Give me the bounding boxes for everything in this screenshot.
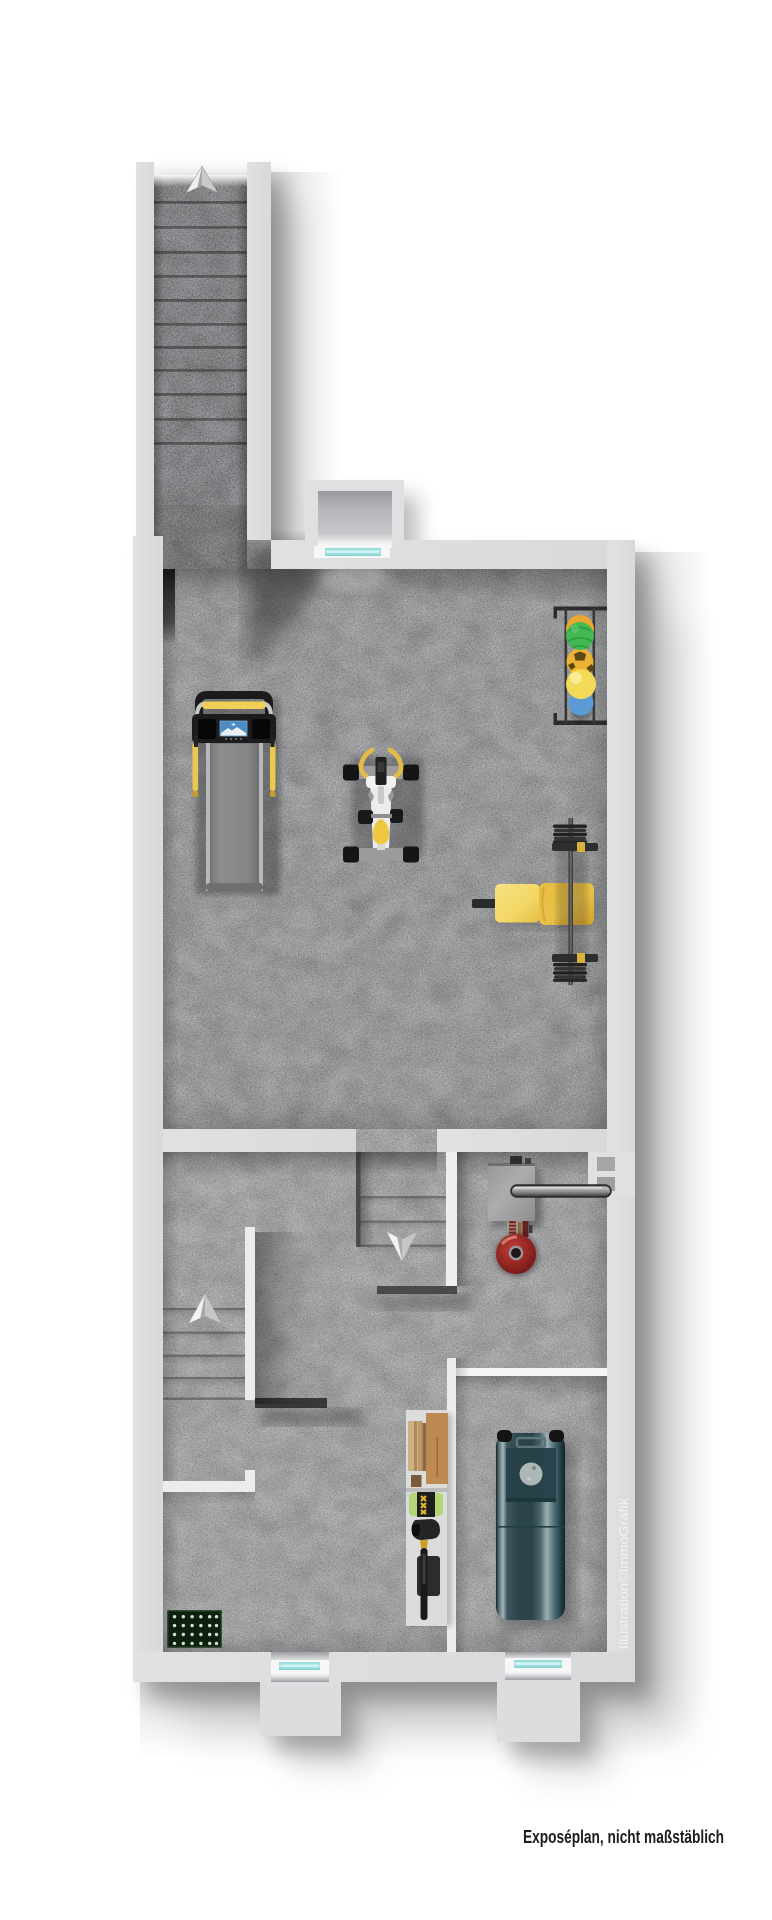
svg-text:Illustration©ImmoGrafik: Illustration©ImmoGrafik (617, 1497, 631, 1649)
svg-text:Exposéplan, nicht maßstäblich: Exposéplan, nicht maßstäblich (523, 1827, 724, 1847)
